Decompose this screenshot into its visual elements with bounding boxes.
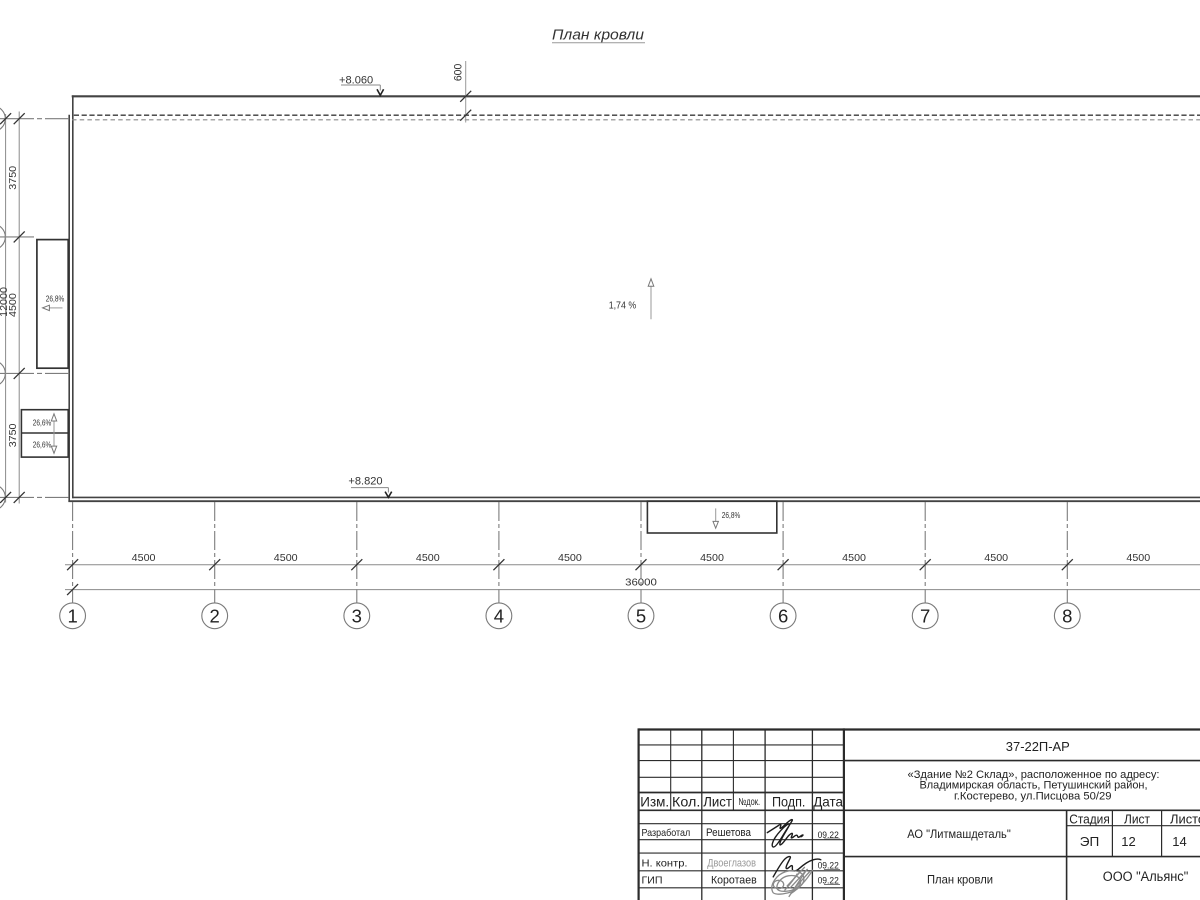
svg-text:36000: 36000 — [625, 576, 657, 588]
svg-text:Двоеглазов: Двоеглазов — [707, 858, 756, 870]
svg-text:ГИП: ГИП — [642, 875, 663, 887]
svg-text:Решетова: Решетова — [706, 827, 752, 839]
svg-text:4500: 4500 — [416, 552, 440, 564]
svg-text:Подп.: Подп. — [772, 794, 806, 810]
svg-text:План кровли: План кровли — [927, 873, 993, 887]
svg-text:14: 14 — [1172, 834, 1187, 849]
svg-text:Лист: Лист — [1124, 812, 1150, 826]
svg-text:4: 4 — [494, 605, 504, 626]
svg-text:4500: 4500 — [558, 552, 582, 564]
svg-text:3750: 3750 — [7, 166, 19, 190]
svg-text:АО "Литмашдеталь": АО "Литмашдеталь" — [907, 827, 1011, 841]
svg-text:12000: 12000 — [0, 287, 10, 317]
svg-text:26,8%: 26,8% — [722, 511, 741, 520]
svg-text:5: 5 — [636, 605, 646, 626]
svg-text:г.Костерево, ул.Писцова 50/29: г.Костерево, ул.Писцова 50/29 — [954, 790, 1112, 802]
svg-text:Дата: Дата — [813, 794, 843, 810]
svg-text:ЭП: ЭП — [1080, 834, 1100, 849]
svg-text:4500: 4500 — [984, 552, 1008, 564]
svg-text:8: 8 — [1062, 605, 1072, 626]
svg-text:Разработал: Разработал — [642, 827, 691, 839]
svg-text:Н. контр.: Н. контр. — [642, 858, 688, 870]
svg-text:26,6%: 26,6% — [33, 419, 52, 428]
svg-text:37-22П-АР: 37-22П-АР — [1006, 739, 1070, 754]
svg-text:1: 1 — [67, 605, 77, 626]
svg-text:Листов: Листов — [1170, 812, 1200, 826]
svg-text:3750: 3750 — [7, 423, 19, 447]
svg-text:№док.: №док. — [738, 797, 760, 808]
svg-text:Коротаев: Коротаев — [711, 875, 757, 887]
svg-text:Кол.: Кол. — [672, 794, 700, 810]
svg-text:600: 600 — [453, 64, 465, 82]
svg-text:Стадия: Стадия — [1069, 812, 1110, 826]
svg-text:7: 7 — [920, 605, 930, 626]
svg-text:1,74 %: 1,74 % — [609, 301, 637, 312]
svg-text:4500: 4500 — [842, 552, 866, 564]
svg-text:Изм.: Изм. — [640, 794, 669, 810]
svg-text:3: 3 — [352, 605, 362, 626]
svg-text:26,8%: 26,8% — [46, 295, 65, 304]
svg-text:6: 6 — [778, 605, 788, 626]
svg-text:4500: 4500 — [132, 552, 156, 564]
svg-text:2: 2 — [210, 605, 220, 626]
svg-text:26,6%: 26,6% — [33, 440, 52, 449]
svg-text:12: 12 — [1121, 834, 1136, 849]
svg-text:09.22: 09.22 — [818, 861, 839, 872]
svg-text:4500: 4500 — [700, 552, 724, 564]
svg-text:+8.820: +8.820 — [348, 475, 382, 487]
svg-text:ООО "Альянс": ООО "Альянс" — [1103, 869, 1189, 884]
svg-text:План кровли: План кровли — [552, 27, 645, 44]
svg-text:4500: 4500 — [1126, 552, 1150, 564]
svg-text:4500: 4500 — [274, 552, 298, 564]
svg-text:Лист: Лист — [703, 794, 732, 810]
